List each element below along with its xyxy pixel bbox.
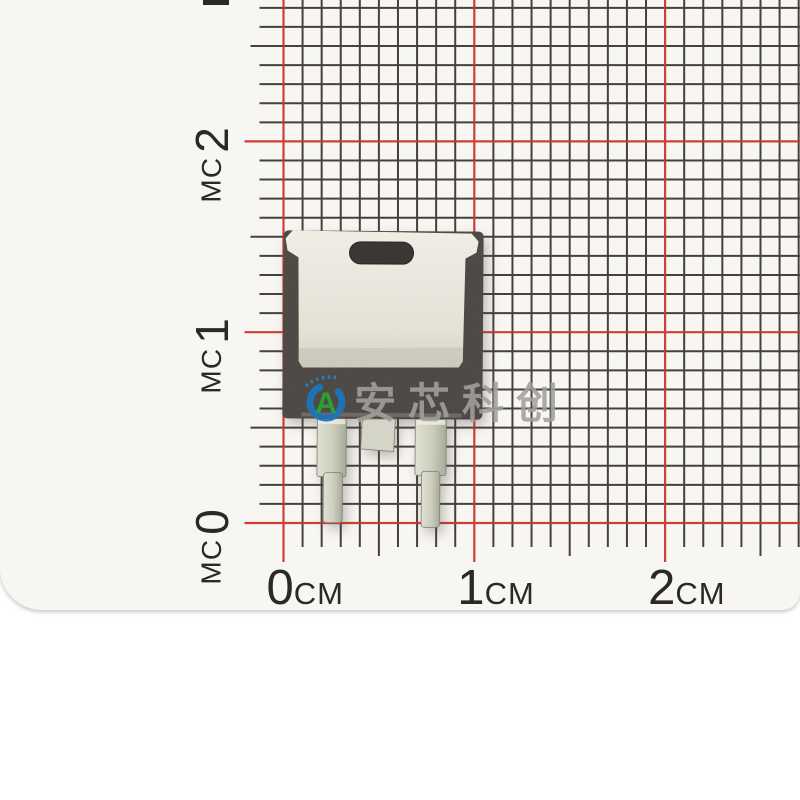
lead-right-upper bbox=[415, 419, 446, 475]
lead-left-upper bbox=[317, 419, 346, 477]
lead-left-cap bbox=[318, 419, 345, 424]
lead-right-cap bbox=[416, 420, 445, 425]
lead-left-lower bbox=[323, 473, 342, 523]
tab-hole bbox=[349, 242, 413, 264]
lead-middle-stub bbox=[361, 419, 396, 452]
component-svg bbox=[0, 0, 800, 800]
lead-right-lower bbox=[421, 471, 440, 527]
page-photo: 2cm1cm0cm 0cm1cm2cm bbox=[0, 0, 800, 800]
